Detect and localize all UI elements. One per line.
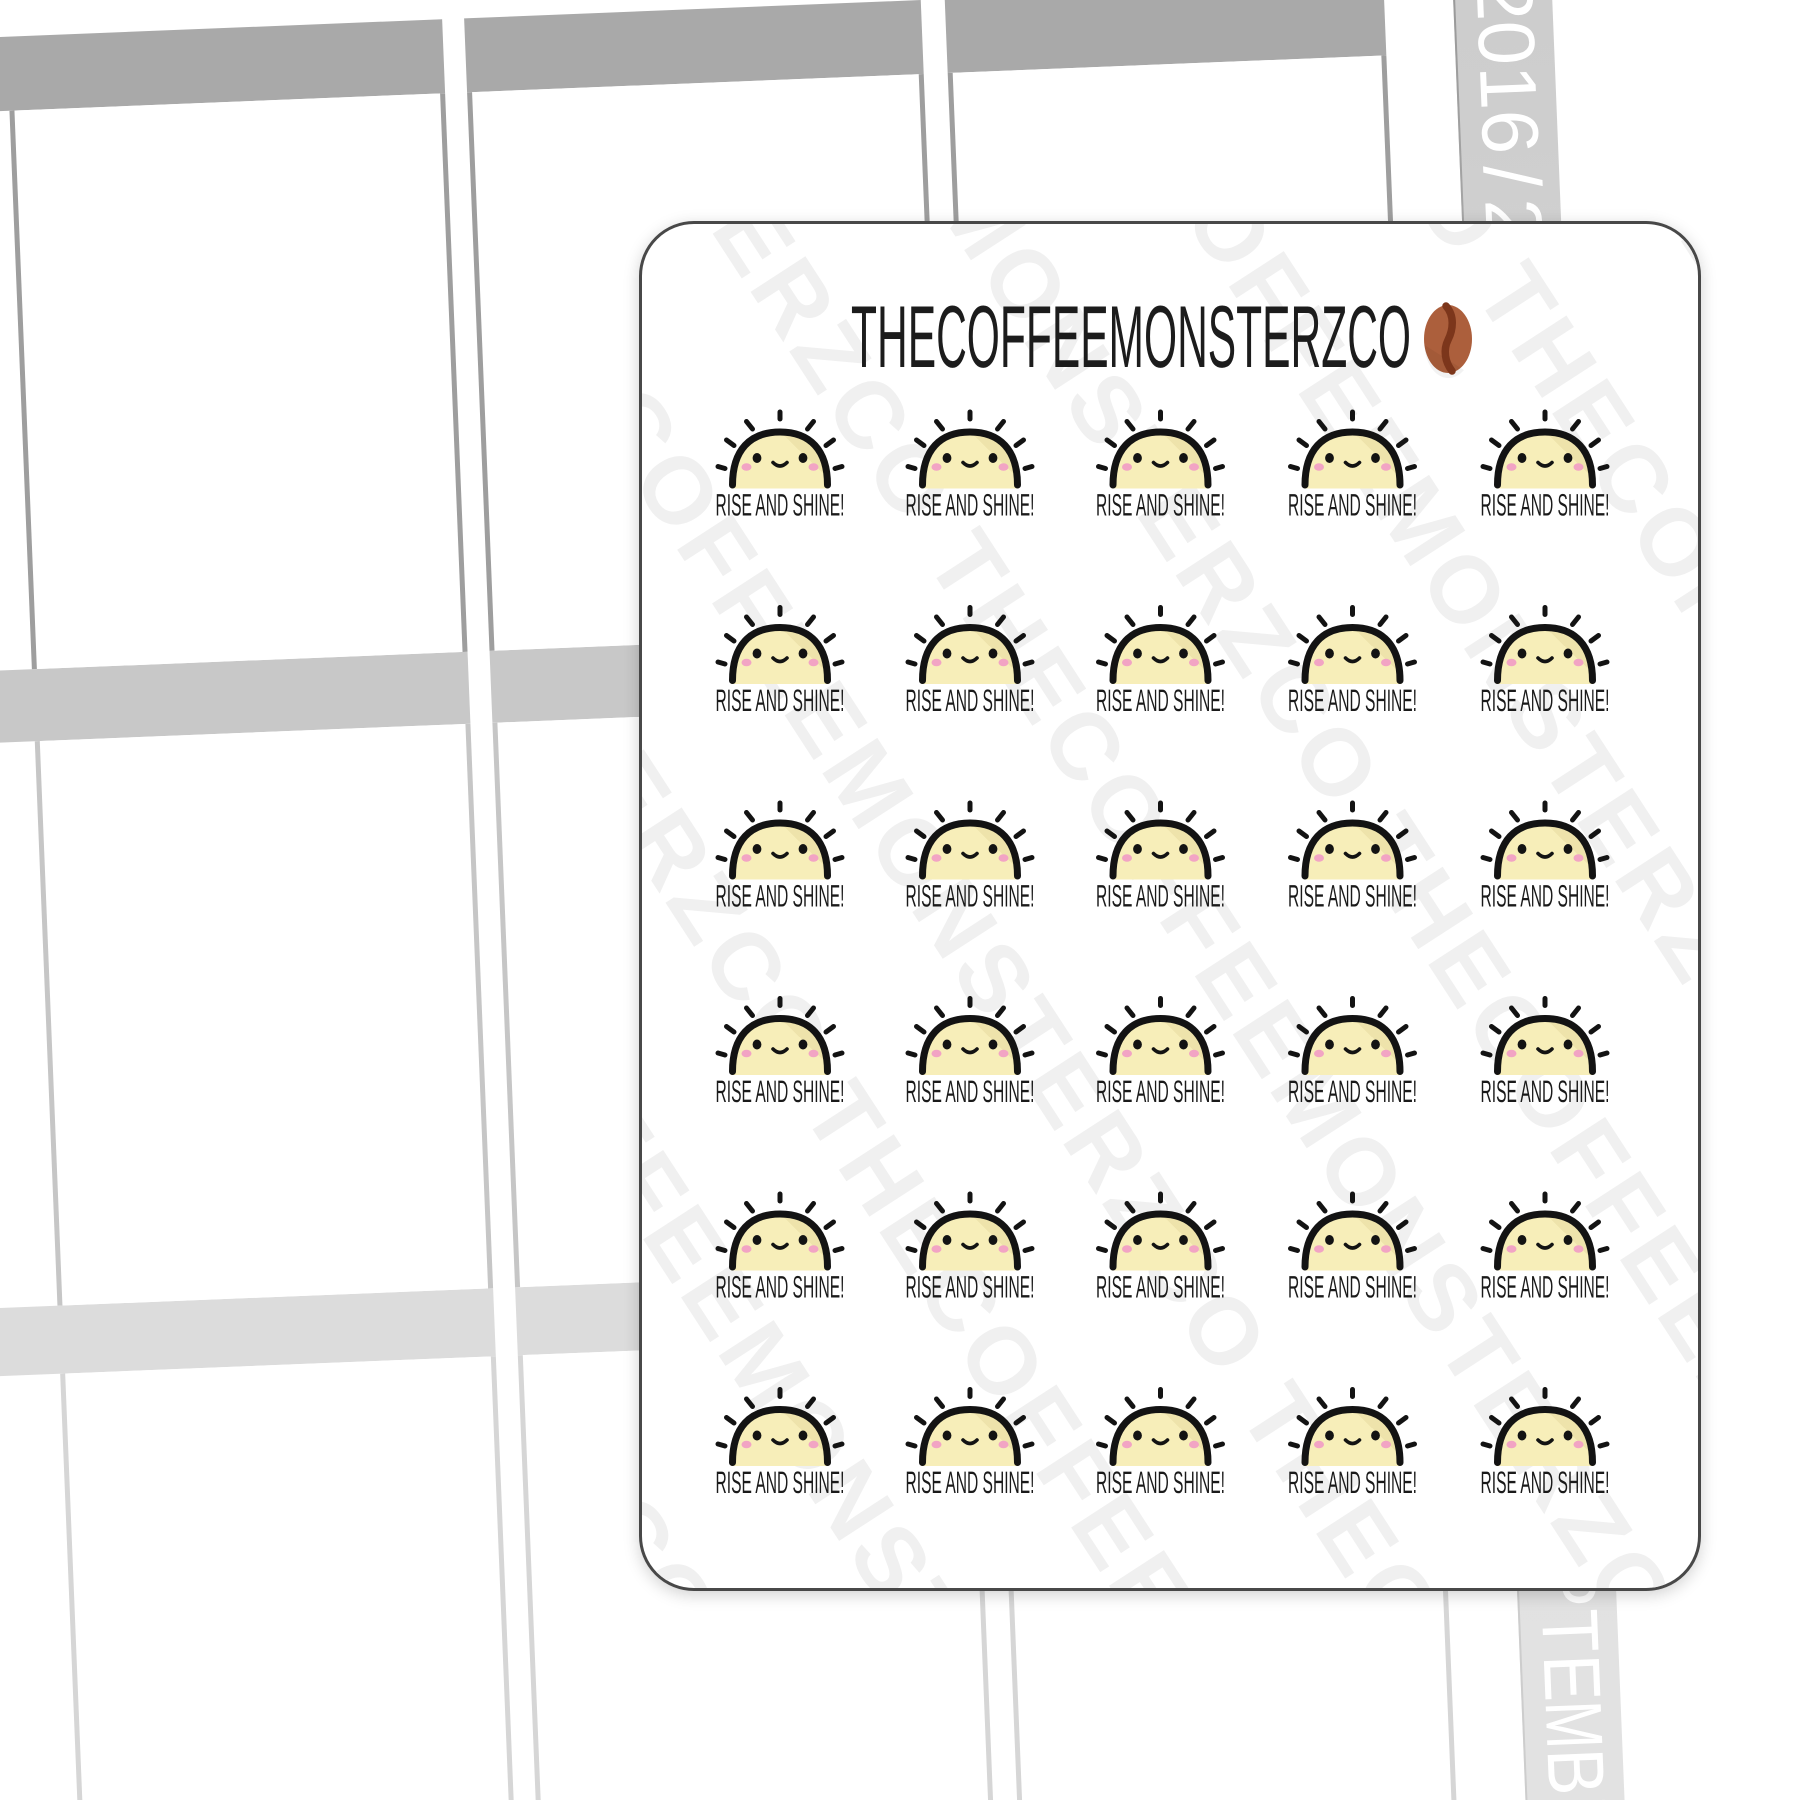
svg-text:THECOFFEEMONSTERZCO: THECOFFEEMONSTERZCO: [851, 287, 1411, 386]
